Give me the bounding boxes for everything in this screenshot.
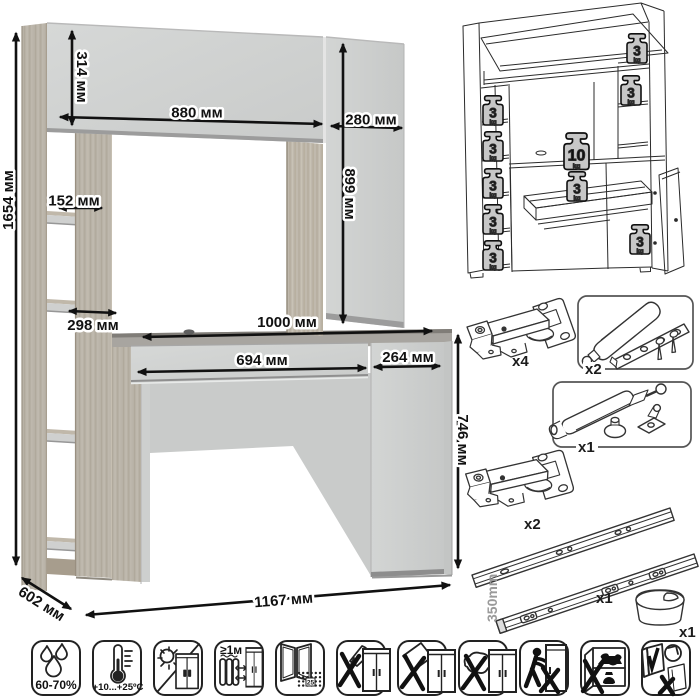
svg-text:746 мм: 746 мм bbox=[454, 414, 471, 465]
svg-text:1654 мм: 1654 мм bbox=[0, 170, 17, 230]
svg-text:350mm: 350mm bbox=[484, 574, 500, 622]
svg-text:25: 25 bbox=[307, 680, 315, 687]
svg-text:298 мм: 298 мм bbox=[67, 317, 118, 334]
svg-text:x2: x2 bbox=[585, 361, 602, 378]
svg-text:60-70%: 60-70% bbox=[35, 678, 77, 692]
svg-text:x1: x1 bbox=[596, 590, 613, 607]
svg-text:1167 мм: 1167 мм bbox=[254, 590, 314, 612]
svg-text:1000 мм: 1000 мм bbox=[257, 314, 317, 331]
svg-text:694 мм: 694 мм bbox=[236, 352, 287, 369]
svg-text:+10...+25ºС: +10...+25ºС bbox=[93, 682, 144, 693]
svg-text:899 мм: 899 мм bbox=[341, 168, 358, 219]
svg-text:280 мм: 280 мм bbox=[345, 112, 396, 129]
svg-text:x4: x4 bbox=[512, 353, 529, 370]
svg-text:x1: x1 bbox=[578, 439, 595, 456]
svg-text:x2: x2 bbox=[524, 516, 541, 533]
svg-text:314 мм: 314 мм bbox=[73, 51, 90, 102]
svg-text:264 мм: 264 мм bbox=[382, 349, 433, 366]
svg-text:152 мм: 152 мм bbox=[48, 193, 99, 210]
svg-text:880 мм: 880 мм bbox=[171, 105, 222, 122]
svg-text:x1: x1 bbox=[679, 624, 696, 641]
